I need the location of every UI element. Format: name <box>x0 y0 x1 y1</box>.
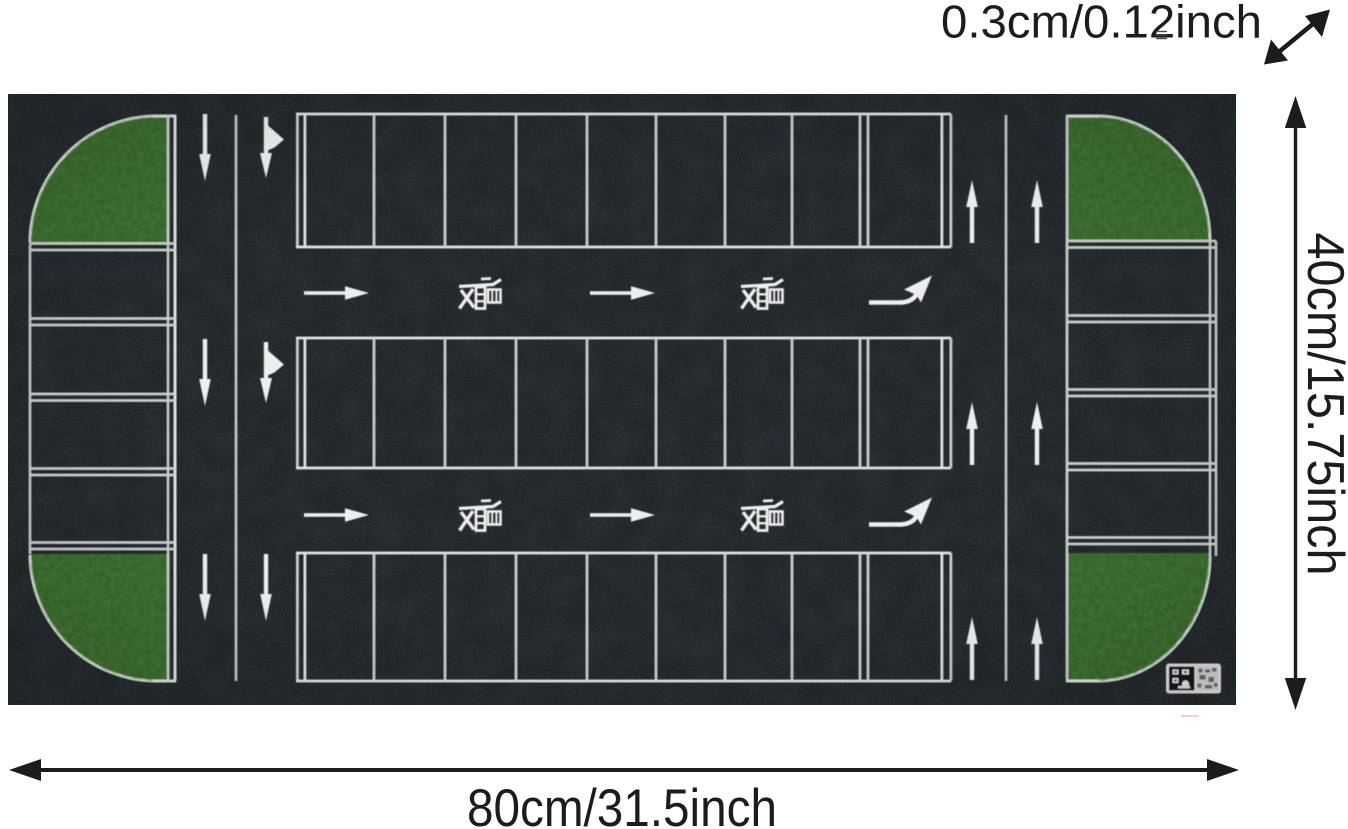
svg-text:80cm/31.5inch: 80cm/31.5inch <box>467 779 777 829</box>
svg-text:0.3cm/0.12inch: 0.3cm/0.12inch <box>941 0 1262 48</box>
svg-text:40cm/15.75inch: 40cm/15.75inch <box>1296 233 1348 576</box>
